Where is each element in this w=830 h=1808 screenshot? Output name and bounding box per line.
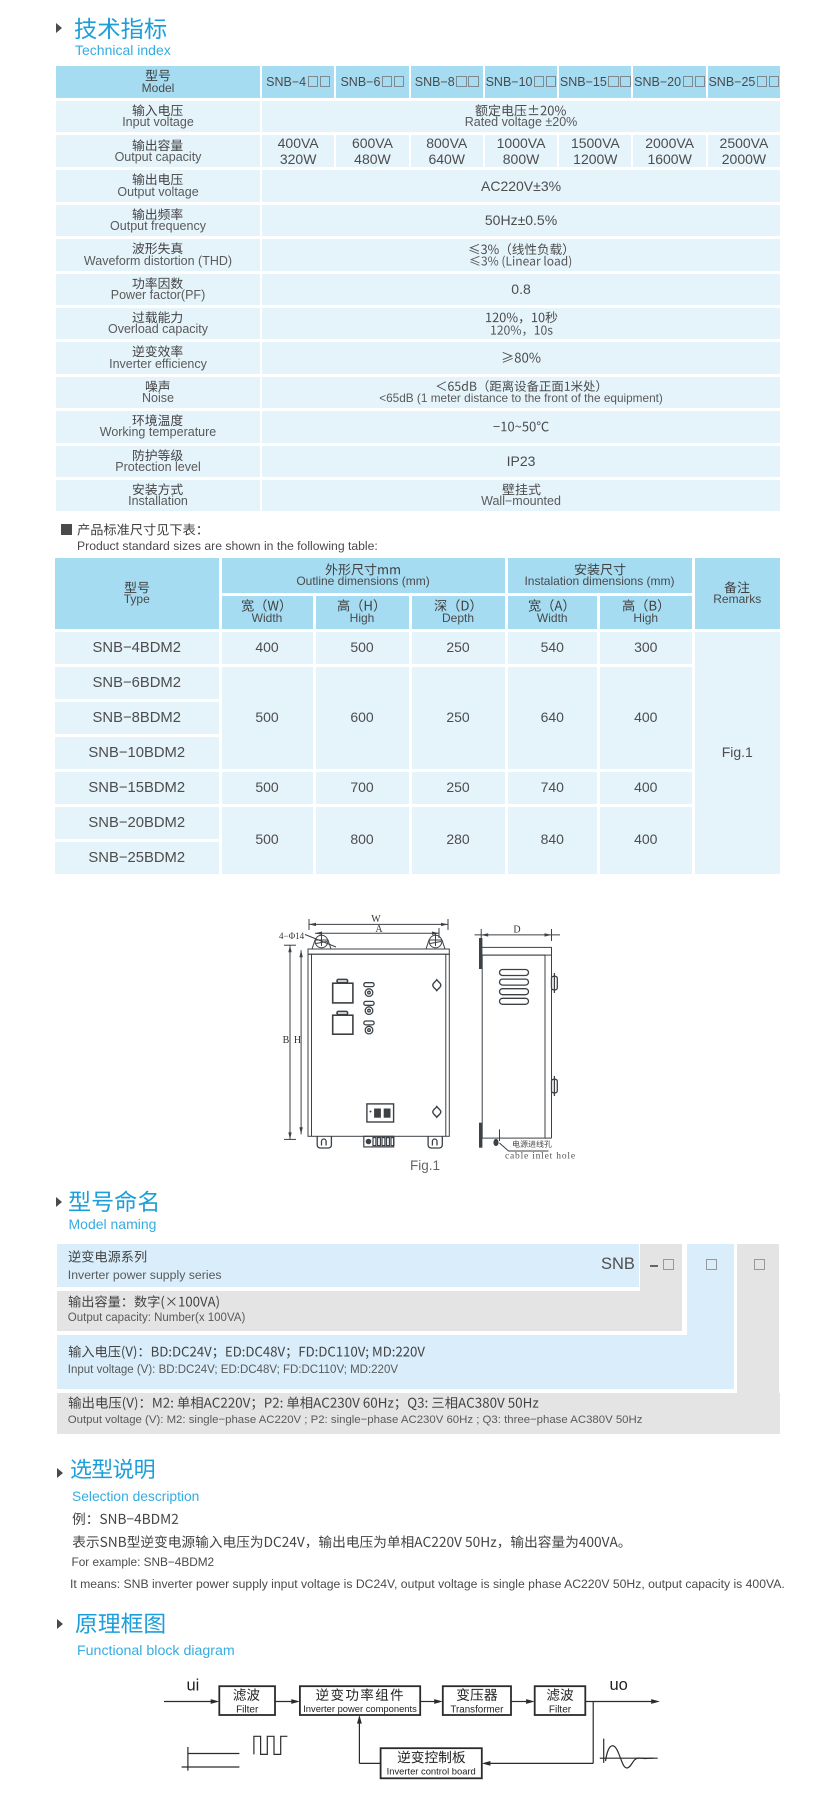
svg-text:Filter: Filter xyxy=(549,1705,572,1716)
svg-text:A: A xyxy=(375,924,383,935)
svg-text:B: B xyxy=(283,1035,290,1046)
svg-text:Inverter control board: Inverter control board xyxy=(387,1766,476,1777)
svg-text:Filter: Filter xyxy=(236,1705,259,1716)
svg-text:4−Φ14: 4−Φ14 xyxy=(279,931,305,941)
svg-text:H: H xyxy=(294,1035,301,1046)
svg-text:Transformer: Transformer xyxy=(450,1705,504,1716)
svg-text:ui: ui xyxy=(187,1676,200,1694)
svg-text:D: D xyxy=(513,925,520,936)
svg-text:cable inlet hole: cable inlet hole xyxy=(505,1152,576,1162)
svg-text:uo: uo xyxy=(610,1676,628,1694)
svg-text:Inverter power components: Inverter power components xyxy=(303,1703,417,1714)
